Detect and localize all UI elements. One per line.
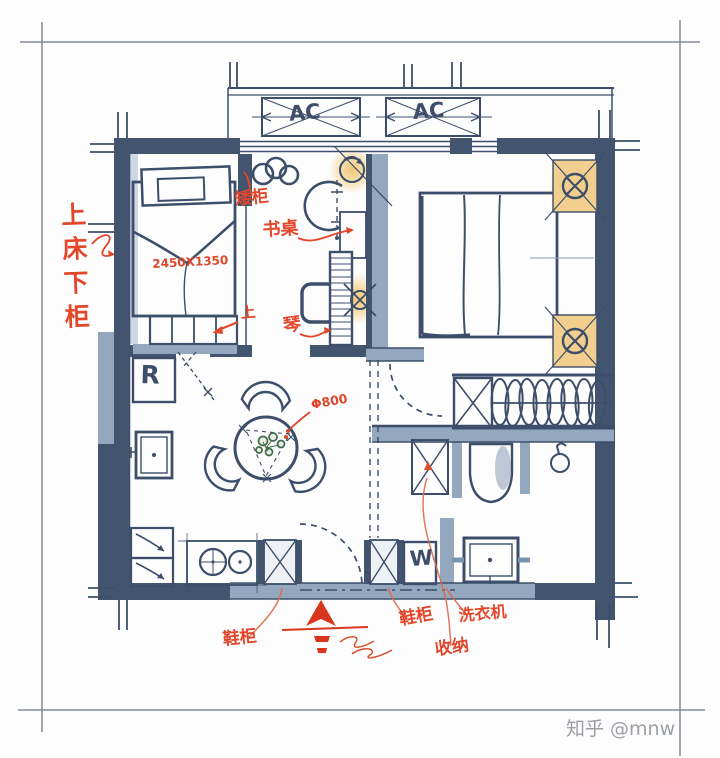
label-shoe-cabinet-entry: 鞋柜	[222, 628, 258, 649]
shoe-cabinet-hall-box	[364, 540, 404, 584]
shower-head	[551, 444, 569, 473]
label-washer: W	[409, 546, 434, 570]
base-cabinets	[131, 528, 173, 586]
watermark: 知乎 @mnw	[566, 714, 675, 741]
kitchen-sink	[128, 432, 172, 478]
piano	[330, 252, 352, 345]
label-step-up: 上	[240, 305, 256, 322]
single-bed	[133, 166, 236, 316]
bath-sink	[452, 538, 530, 584]
bedroom-right	[420, 152, 605, 375]
label-ac-2: AC	[412, 99, 445, 123]
study-door-arc	[305, 180, 343, 240]
cabinet-front-dashes	[370, 360, 378, 538]
label-piano: 琴	[282, 315, 302, 336]
entry-door-arc	[300, 524, 362, 586]
label-ac-1: AC	[288, 100, 321, 125]
signature-scribble	[340, 637, 392, 658]
wardrobe	[452, 375, 614, 428]
dining-chair	[242, 381, 291, 410]
floor-plan-canvas: 上床下柜 2450X1350 矮柜 书桌 琴 上 Φ800 R W AC AC …	[0, 0, 720, 758]
hall-door-arc	[390, 364, 442, 416]
label-fridge: R	[140, 362, 160, 389]
bed-end-cabinet	[150, 316, 237, 344]
label-desk: 书桌	[262, 219, 299, 240]
nightstand-lamp-1	[545, 152, 605, 220]
label-low-cabinet: 矮柜	[234, 188, 270, 209]
toilet	[470, 444, 512, 502]
decor-circles	[253, 158, 298, 184]
label-bunk-note: 上床下柜	[58, 201, 89, 338]
double-bed	[420, 193, 557, 337]
nightstand-lamp-2	[545, 307, 605, 375]
bedroom-door-dashes	[178, 352, 214, 400]
shoe-cabinet-entry-box	[258, 540, 302, 584]
floor-plan-drawing	[0, 0, 720, 758]
